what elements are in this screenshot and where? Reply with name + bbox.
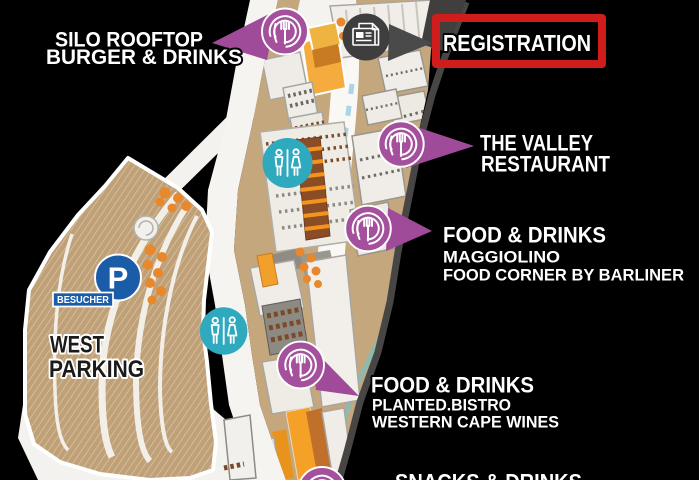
svg-text:MAGGIOLINO: MAGGIOLINO: [443, 248, 560, 267]
svg-text:WESTERN CAPE WINES: WESTERN CAPE WINES: [372, 413, 559, 432]
svg-text:FOOD & DRINKS: FOOD & DRINKS: [371, 373, 534, 398]
svg-text:RESTAURANT: RESTAURANT: [481, 152, 610, 177]
svg-text:PARKING: PARKING: [49, 356, 144, 383]
svg-text:BURGER & DRINKS: BURGER & DRINKS: [46, 46, 242, 69]
svg-text:FOOD CORNER BY BARLINER: FOOD CORNER BY BARLINER: [443, 266, 684, 285]
svg-text:SNACKS & DRINKS: SNACKS & DRINKS: [395, 470, 582, 480]
svg-text:P: P: [108, 261, 129, 296]
svg-text:REGISTRATION: REGISTRATION: [443, 30, 591, 56]
svg-text:WEST: WEST: [50, 332, 104, 359]
svg-text:FOOD & DRINKS: FOOD & DRINKS: [443, 223, 606, 248]
svg-text:BESUCHER: BESUCHER: [57, 295, 110, 306]
